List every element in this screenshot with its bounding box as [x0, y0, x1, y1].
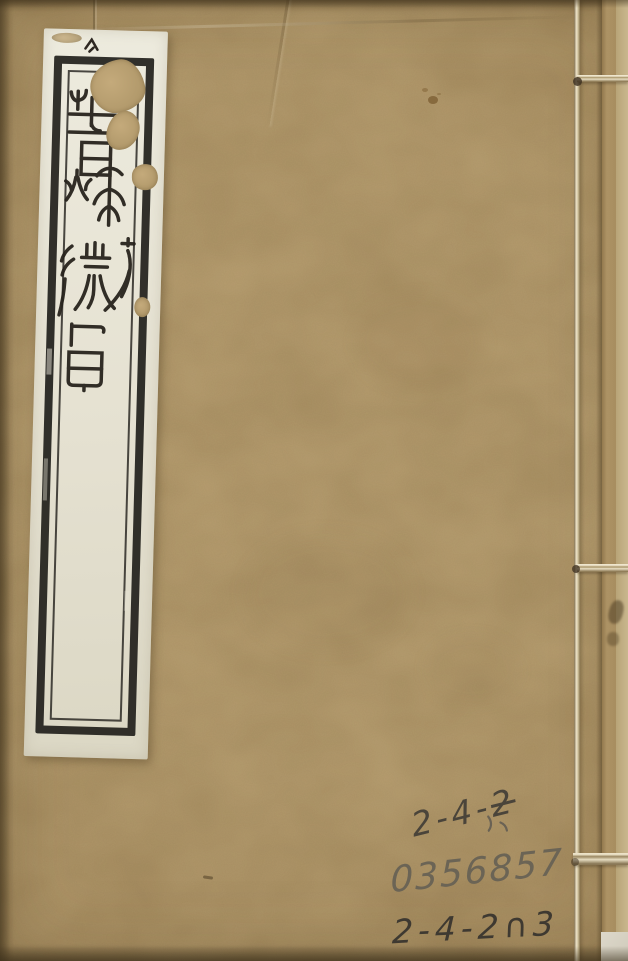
- binding-stitch: [577, 75, 628, 82]
- speck: [203, 875, 213, 879]
- pencil-squiggle: [485, 811, 511, 840]
- ink-stain: [428, 96, 438, 104]
- thread-knot: [572, 565, 580, 573]
- label-damage-patch: [132, 164, 159, 191]
- title-label: 春秋微旨: [24, 28, 168, 759]
- ink-mark: [83, 37, 101, 53]
- top-edge-shadow: [0, 0, 628, 8]
- binding-thread-vertical: [574, 0, 580, 961]
- bottom-edge-shadow: [0, 946, 628, 961]
- page-edge-strip: [602, 0, 616, 961]
- handwriting-line3: 2-4-2∩3: [391, 904, 559, 952]
- edge-stain: [607, 632, 619, 646]
- handwriting-line1-main: 2-4-: [408, 786, 494, 844]
- stain: [355, 295, 485, 390]
- stain: [425, 635, 520, 705]
- thread-knot: [571, 858, 579, 866]
- stain: [245, 535, 410, 650]
- binding-stitch: [577, 564, 628, 572]
- page-edge-strip: [616, 0, 628, 961]
- left-edge-shadow: [0, 0, 10, 961]
- crease-line: [266, 0, 290, 126]
- seal-script-title: [24, 28, 168, 759]
- fold-line: [55, 15, 580, 32]
- book-cover: 春秋微旨 2-4-2 0356857 2-4-2∩3: [0, 0, 628, 961]
- binding-stitch: [573, 853, 628, 865]
- thread-knot: [573, 77, 582, 86]
- handwriting-line2: 0356857: [390, 842, 563, 901]
